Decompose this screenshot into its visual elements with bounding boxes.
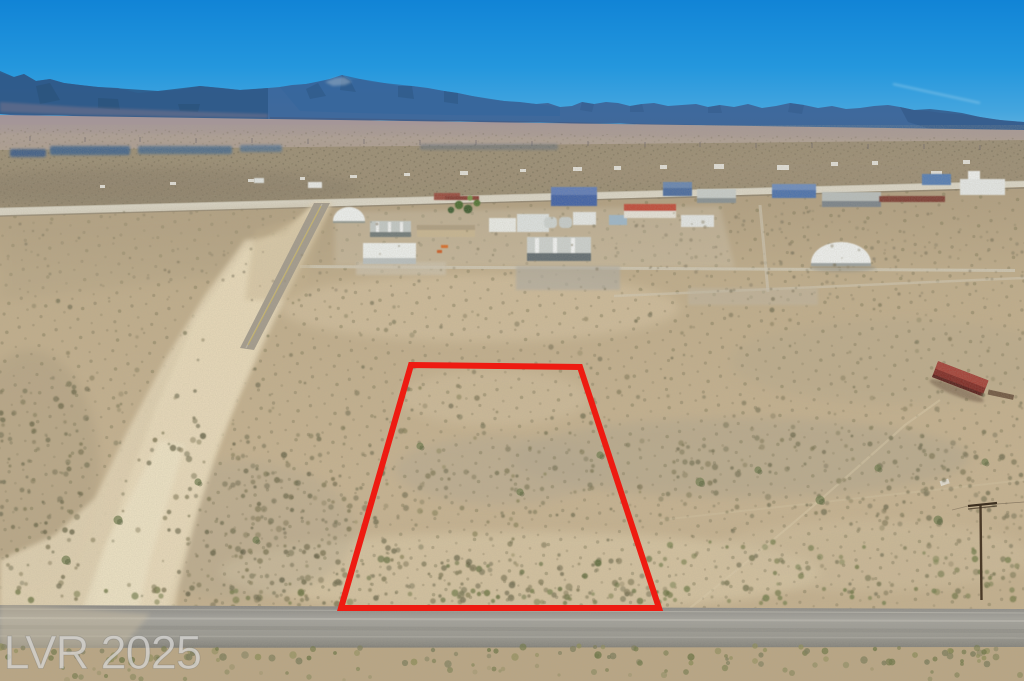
svg-text:LVR 2025: LVR 2025: [4, 626, 202, 679]
